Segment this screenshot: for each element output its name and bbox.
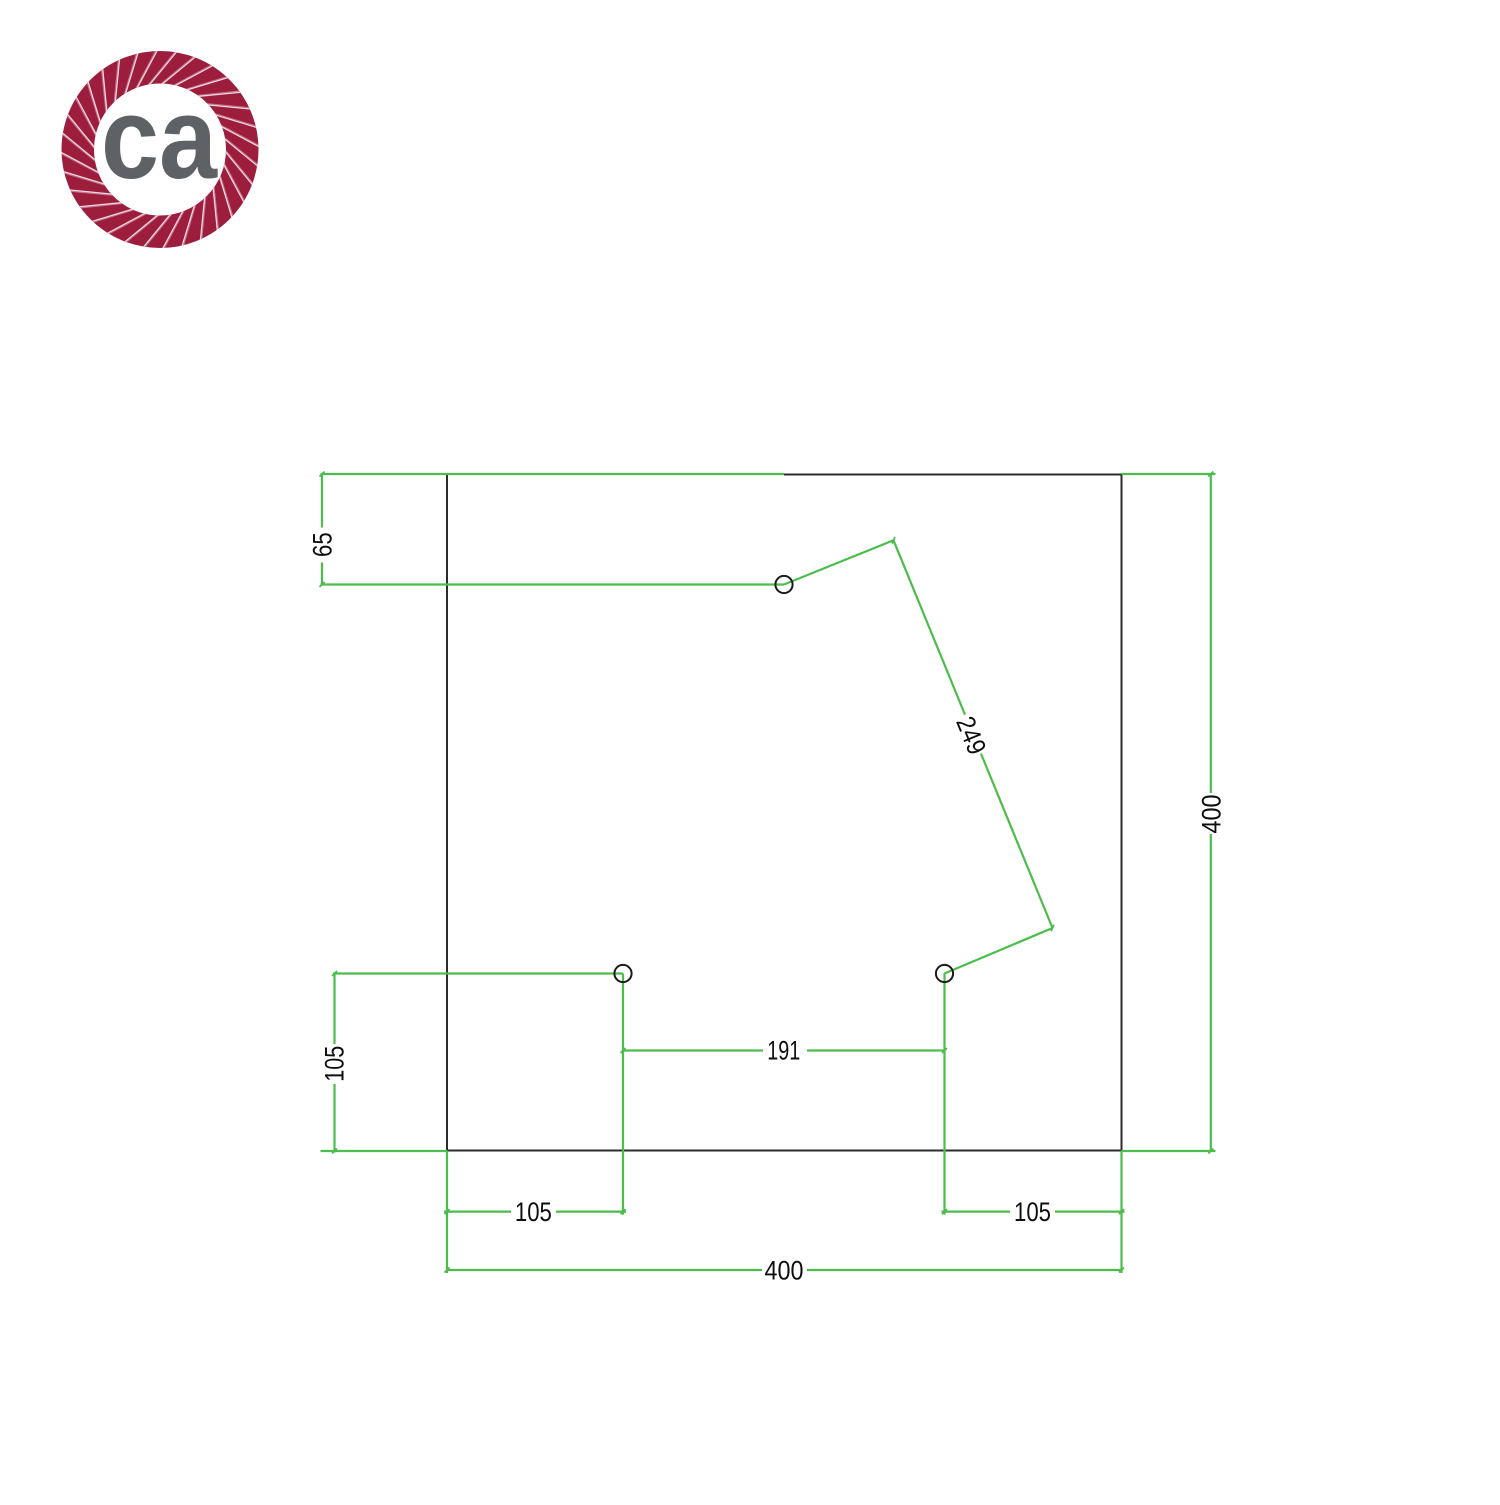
svg-text:105: 105 <box>515 1197 552 1227</box>
svg-text:ca: ca <box>101 73 218 203</box>
svg-text:65: 65 <box>307 532 337 557</box>
svg-text:400: 400 <box>765 1255 804 1285</box>
svg-text:105: 105 <box>320 1046 350 1082</box>
svg-text:400: 400 <box>1197 795 1227 834</box>
svg-text:191: 191 <box>767 1036 800 1066</box>
svg-text:105: 105 <box>1014 1197 1051 1227</box>
